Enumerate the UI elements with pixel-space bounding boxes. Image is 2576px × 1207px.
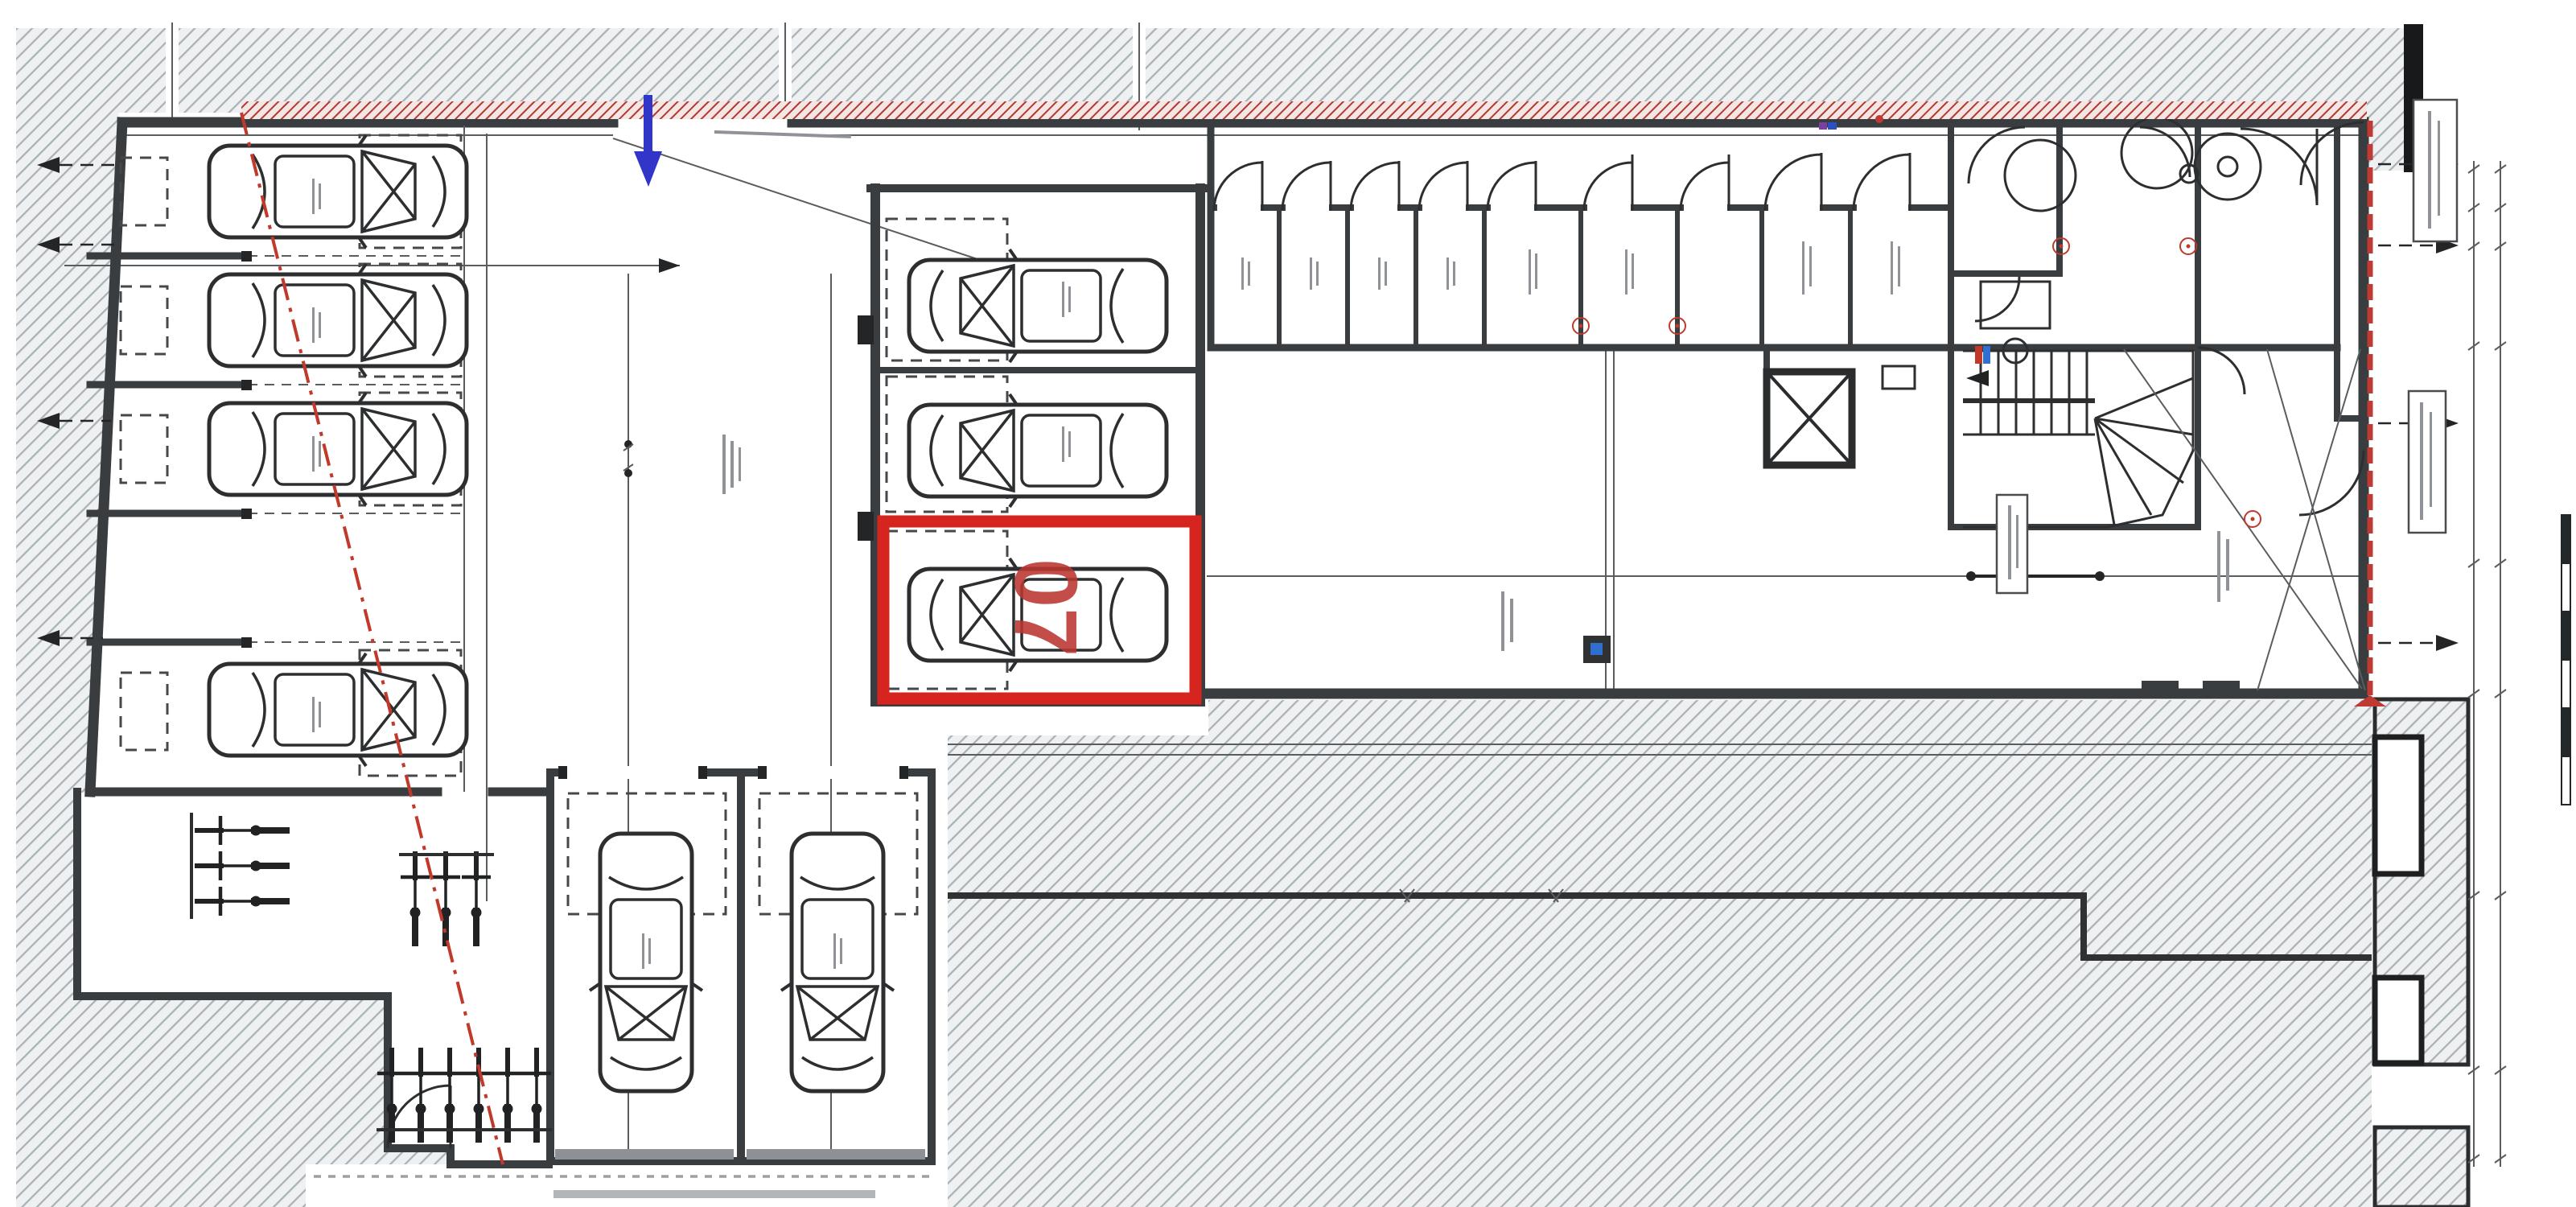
garage-door-2 <box>747 1149 925 1160</box>
car-icon <box>209 264 467 377</box>
middle-parking-stalls: 07 <box>883 219 1195 698</box>
car-icon <box>209 135 467 248</box>
dimension-lines-right <box>2468 161 2570 1167</box>
floor-plan-page: 07 <box>0 0 2576 1207</box>
wall-note-box-1 <box>2413 100 2457 241</box>
driveway-marking <box>553 1190 875 1198</box>
stall-07-label: 07 <box>996 558 1095 657</box>
boundary-hatch-top <box>241 101 2367 119</box>
neighbor-recess-2 <box>2375 978 2422 1063</box>
driveway-area <box>306 1164 933 1207</box>
elevator-shaft <box>1767 372 1852 465</box>
wall-note-box-2 <box>2409 391 2446 533</box>
car-icon <box>209 653 467 766</box>
car-icon <box>909 249 1167 362</box>
floor-plan-canvas: 07 <box>0 0 2576 1207</box>
neighbor-building-section-2 <box>2375 1127 2468 1207</box>
car-icon <box>781 834 894 1091</box>
car-icon <box>209 393 467 505</box>
car-icon <box>590 834 702 1091</box>
garage-door-1 <box>555 1149 734 1160</box>
site-hatch-top-band <box>16 28 2337 113</box>
graphic-scale-bar <box>2562 515 2570 805</box>
car-icon <box>909 394 1167 507</box>
neighbor-recess-1 <box>2375 737 2422 874</box>
site-hatch-bottom-field <box>948 700 2372 1207</box>
